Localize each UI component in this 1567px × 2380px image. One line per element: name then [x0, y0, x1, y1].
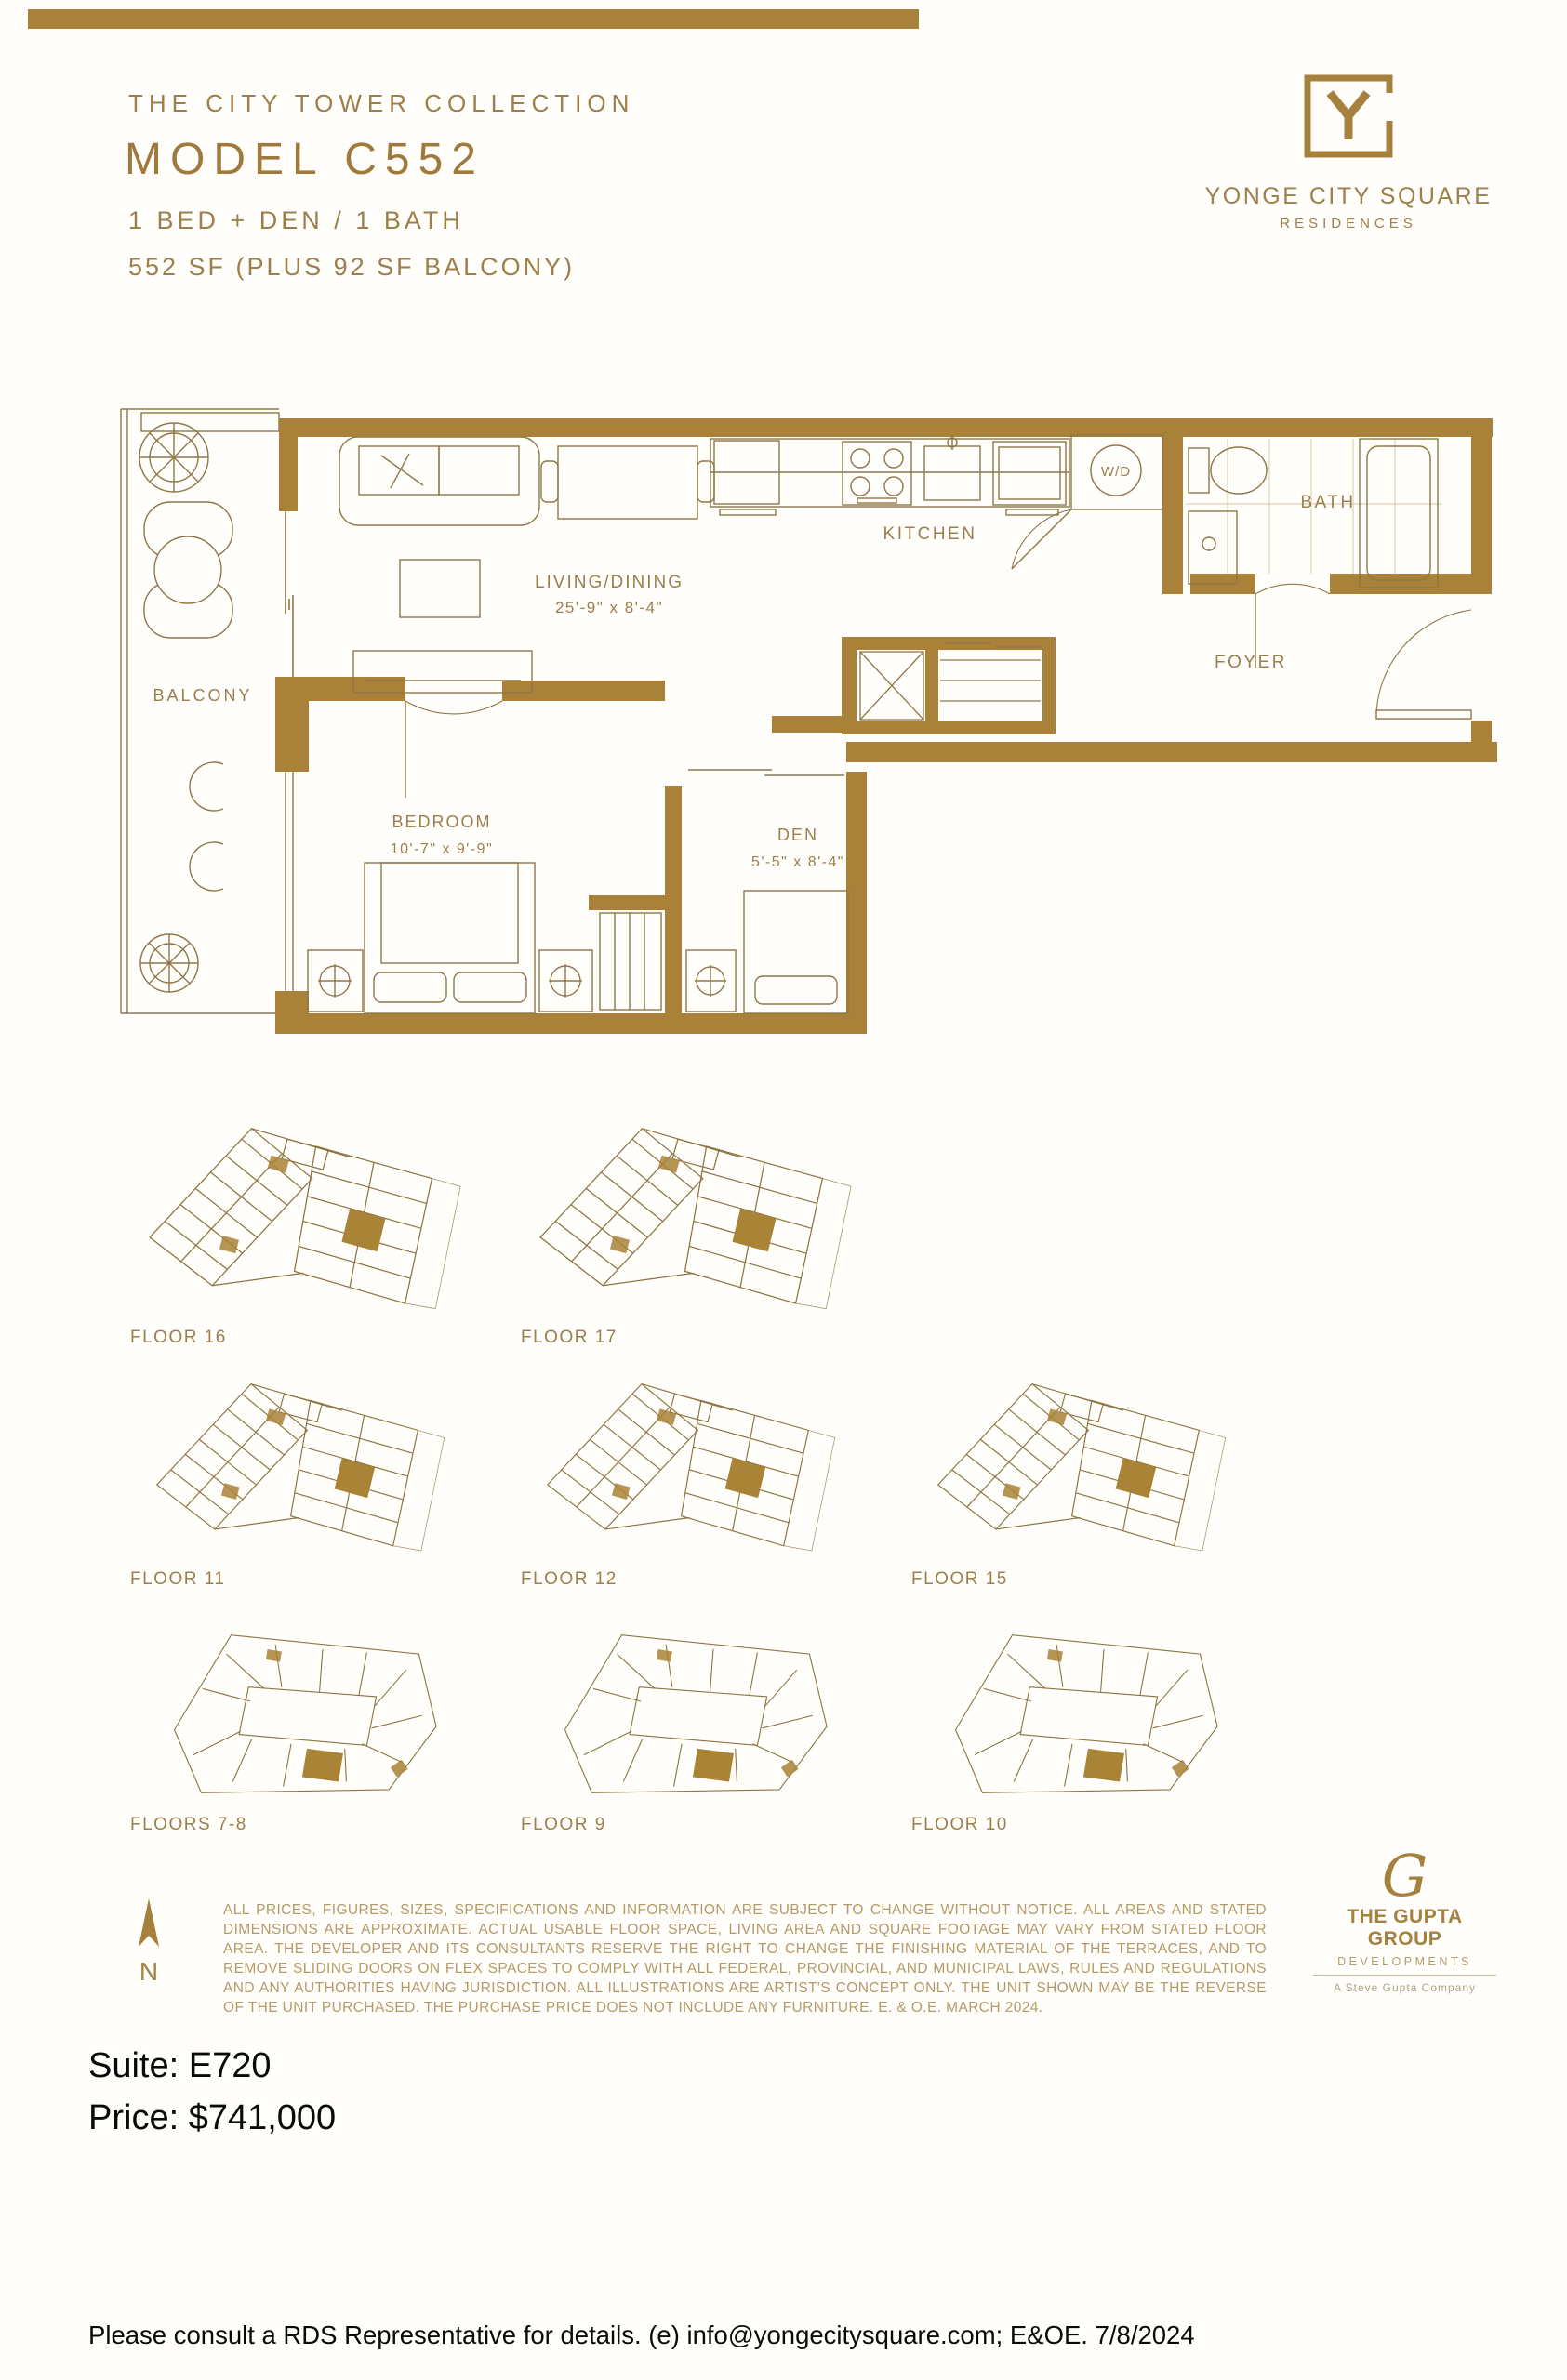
- foyer-closet: [940, 643, 1041, 701]
- unit-floor-plan: BALCONY: [102, 400, 1497, 1041]
- nightstand-icon: [308, 950, 363, 1011]
- sliding-door: [286, 511, 293, 677]
- developer-logo: G THE GUPTA GROUP DEVELOPMENTS A Steve G…: [1309, 1848, 1500, 1994]
- den-dims: 5'-5" x 8'-4": [751, 854, 844, 870]
- sink-icon: [924, 435, 980, 500]
- developer-name: THE GUPTA GROUP: [1309, 1906, 1500, 1950]
- nightstand-icon: [686, 950, 736, 1011]
- bedroom-dims: 10'-7" x 9'-9": [391, 841, 494, 857]
- disclaimer-text: ALL PRICES, FIGURES, SIZES, SPECIFICATIO…: [223, 1900, 1267, 2017]
- keyplate-label: FLOOR 16: [130, 1328, 227, 1348]
- bathtub-icon: [1360, 439, 1438, 588]
- den-furniture: [686, 770, 848, 1013]
- keyplate-label: FLOOR 9: [521, 1815, 606, 1835]
- divider: [1313, 1975, 1496, 1976]
- bath-label: BATH: [1300, 493, 1355, 512]
- brand-logo: YONGE CITY SQUARE RESIDENCES: [1200, 74, 1497, 231]
- plant-icon: [140, 934, 198, 992]
- compass-label: N: [121, 1957, 177, 1987]
- top-accent-bar: [28, 9, 919, 29]
- keyplate-floor-17: [516, 1102, 879, 1325]
- compass: N: [121, 1897, 177, 1987]
- unit-config: 1 BED + DEN / 1 BATH: [128, 206, 464, 235]
- bedroom-label: BEDROOM: [392, 813, 491, 831]
- floorplan-sheet: THE CITY TOWER COLLECTION MODEL C552 1 B…: [0, 0, 1567, 2380]
- bath-area: [1186, 439, 1441, 668]
- listing-info: Suite: E720 Price: $741,000: [88, 2040, 336, 2144]
- kitchen-counter: [710, 435, 1069, 515]
- keyplate-label: FLOOR 11: [130, 1569, 225, 1590]
- kitchen-label: KITCHEN: [883, 524, 977, 544]
- suite-number: Suite: E720: [88, 2040, 336, 2092]
- stove-icon: [843, 442, 911, 505]
- shaft: [860, 643, 1041, 720]
- keyplate-floor-15: [907, 1359, 1260, 1566]
- living-dims: 25'-9" x 8'-4": [555, 599, 663, 616]
- den-label: DEN: [777, 826, 818, 844]
- keyplate-floor-11: [126, 1359, 479, 1566]
- keyplate-label: FLOOR 12: [521, 1569, 618, 1590]
- keyplate-label: FLOOR 15: [911, 1569, 1008, 1590]
- plant-icon: [139, 423, 208, 492]
- bedroom-closet: [600, 913, 661, 1010]
- nightstand-icon: [539, 950, 592, 1011]
- price: Price: $741,000: [88, 2092, 336, 2144]
- fridge-icon: [993, 442, 1066, 515]
- living-label: LIVING/DINING: [535, 573, 684, 592]
- collection-title: THE CITY TOWER COLLECTION: [128, 89, 634, 118]
- keyplate-floor-10: [902, 1613, 1274, 1810]
- brand-subtitle: RESIDENCES: [1200, 216, 1497, 231]
- developer-division: DEVELOPMENTS: [1309, 1955, 1500, 1968]
- north-arrow-icon: [126, 1897, 172, 1950]
- brand-name: YONGE CITY SQUARE: [1200, 183, 1497, 210]
- balcony-label: BALCONY: [153, 686, 252, 705]
- bedroom-furniture: [308, 701, 661, 1013]
- entry-door: [1376, 610, 1471, 719]
- footer-note: Please consult a RDS Representative for …: [88, 2320, 1195, 2350]
- keyplate-label: FLOORS 7-8: [130, 1815, 247, 1835]
- living-furniture: [339, 437, 714, 693]
- keyplate-floor-12: [516, 1359, 870, 1566]
- unit-area: 552 SF (PLUS 92 SF BALCONY): [128, 253, 575, 282]
- keyplate-floors-7-8: [121, 1613, 493, 1810]
- model-title: MODEL C552: [125, 134, 485, 185]
- laundry-closet: [1012, 435, 1162, 569]
- foyer-label: FOYER: [1215, 653, 1287, 672]
- laundry-label: W/D: [1101, 464, 1131, 480]
- vanity-icon: [1189, 511, 1237, 584]
- developer-monogram-icon: G: [1309, 1848, 1500, 1904]
- keyplate-floor-16: [126, 1102, 488, 1325]
- keyplate-label: FLOOR 10: [911, 1815, 1008, 1835]
- bedroom-window: [286, 772, 293, 991]
- keyplate-floor-9: [511, 1613, 883, 1810]
- balcony-area: [121, 409, 279, 1013]
- developer-tagline: A Steve Gupta Company: [1309, 1981, 1500, 1994]
- brand-monogram-icon: [1304, 74, 1393, 158]
- keyplate-label: FLOOR 17: [521, 1328, 618, 1348]
